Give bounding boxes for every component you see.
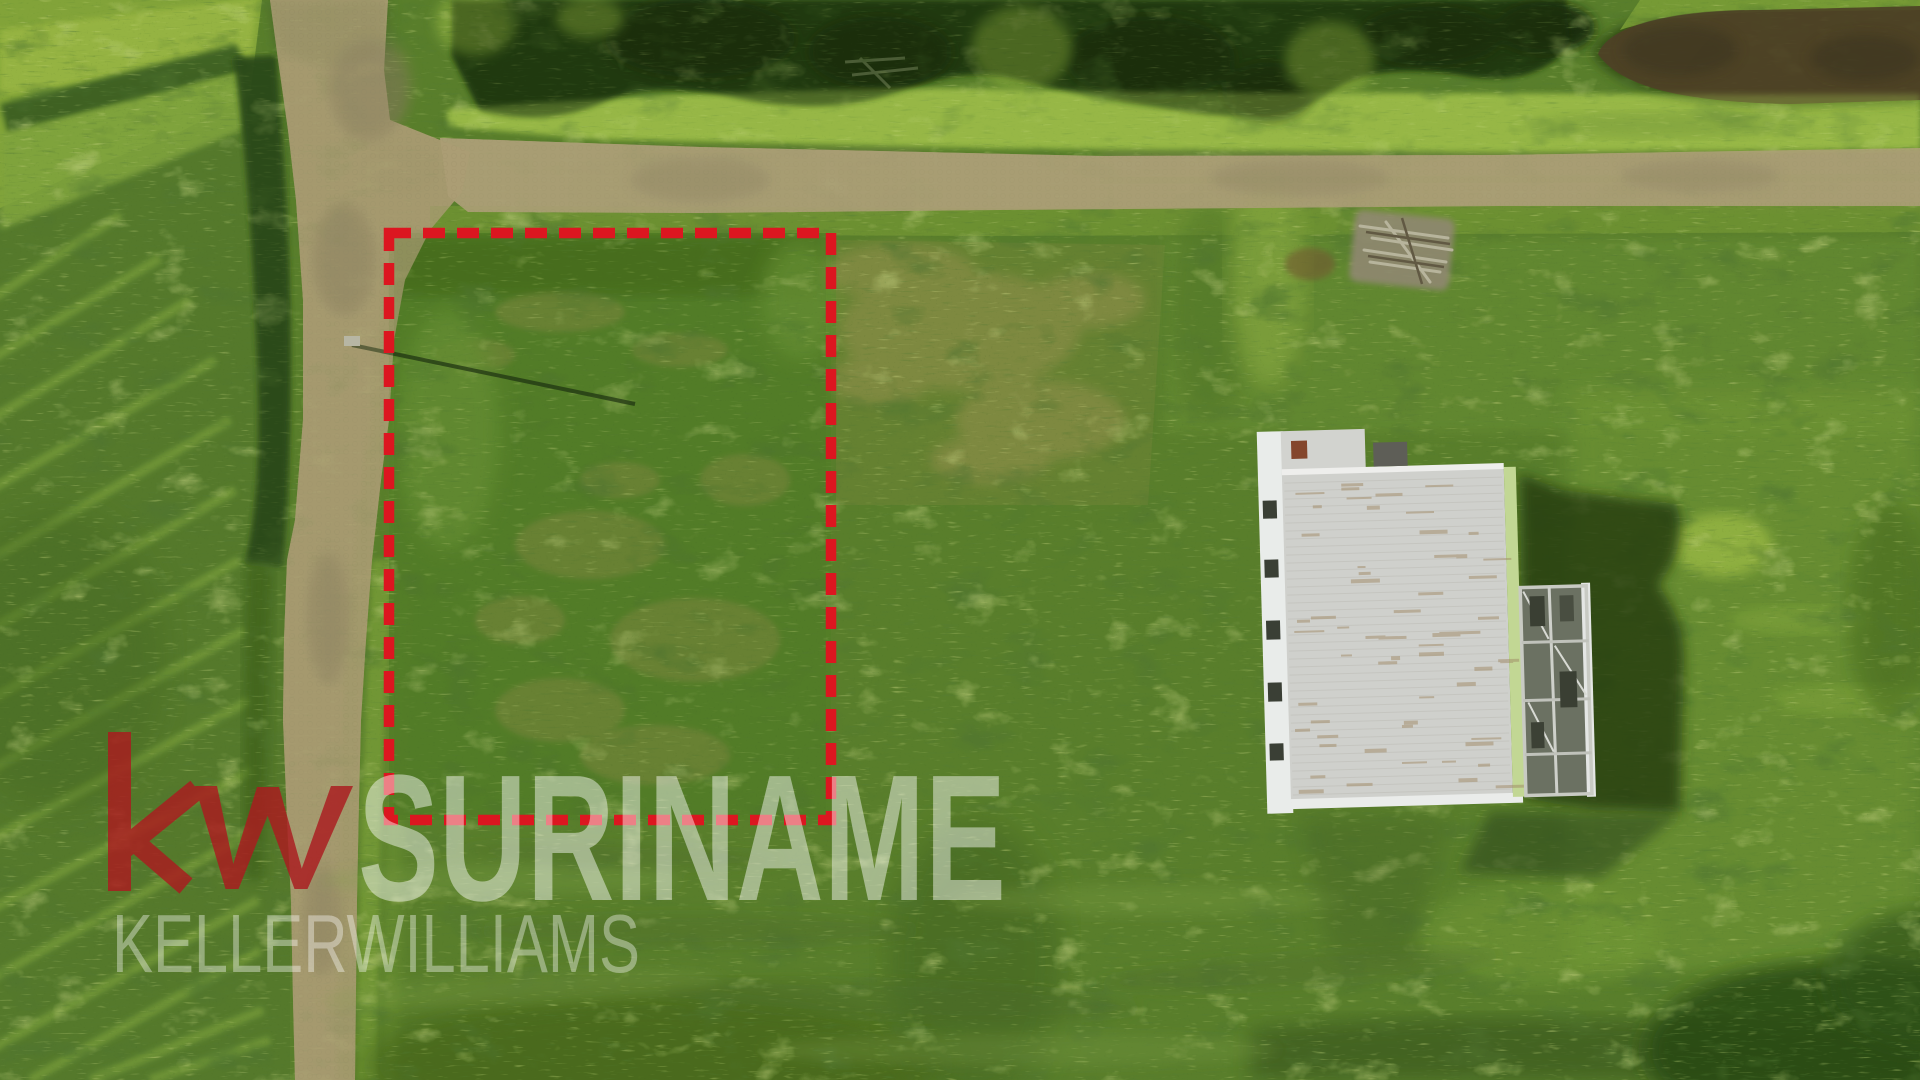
svg-text:KELLERWILLIAMS: KELLERWILLIAMS [112, 897, 640, 990]
